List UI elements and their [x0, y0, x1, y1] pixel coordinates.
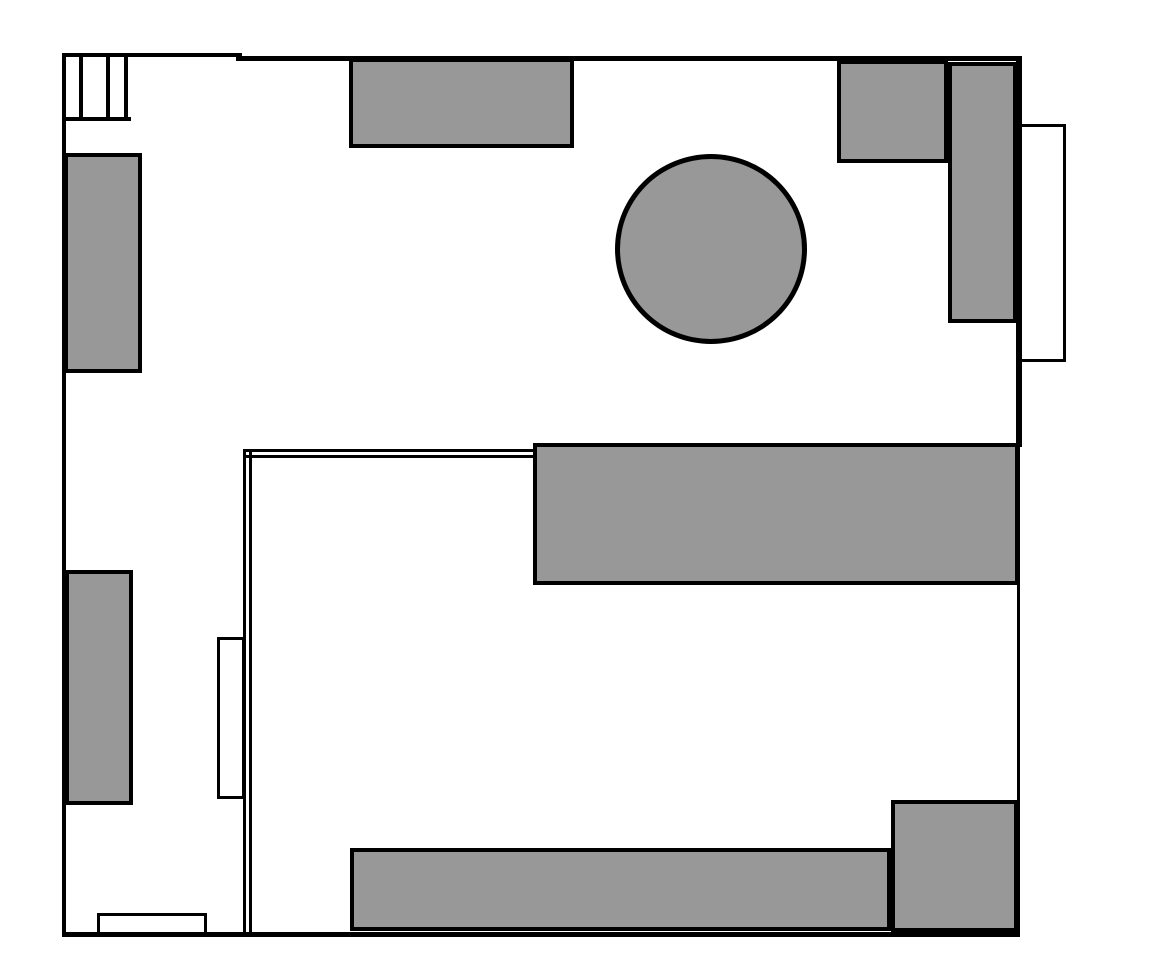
furniture-top-cabinet: [349, 58, 574, 148]
window-mullion-2: [106, 55, 110, 119]
window-sill: [66, 117, 131, 121]
furniture-round-table: [615, 154, 807, 344]
partition-horizontal-outer-line: [243, 449, 533, 452]
furniture-bottom-counter: [350, 848, 891, 931]
furniture-corner-unit-top: [837, 60, 948, 163]
furniture-center-counter: [533, 443, 1019, 585]
furniture-bottom-right-unit: [891, 800, 1018, 932]
window-mullion-1: [79, 55, 83, 119]
bottom-wall-door: [97, 913, 207, 935]
partition-vertical-inner-line: [249, 449, 252, 935]
right-wall-door: [1019, 124, 1066, 362]
furniture-corner-unit-side: [948, 62, 1017, 323]
furniture-left-lower-cabinet: [65, 570, 133, 805]
partition-horizontal-inner-line: [243, 455, 533, 458]
partition-door: [217, 637, 245, 799]
furniture-left-upper-cabinet: [64, 153, 142, 373]
wall-top-left-segment: [62, 53, 242, 57]
window-mullion-3: [124, 55, 128, 119]
floor-plan: [0, 0, 1149, 960]
